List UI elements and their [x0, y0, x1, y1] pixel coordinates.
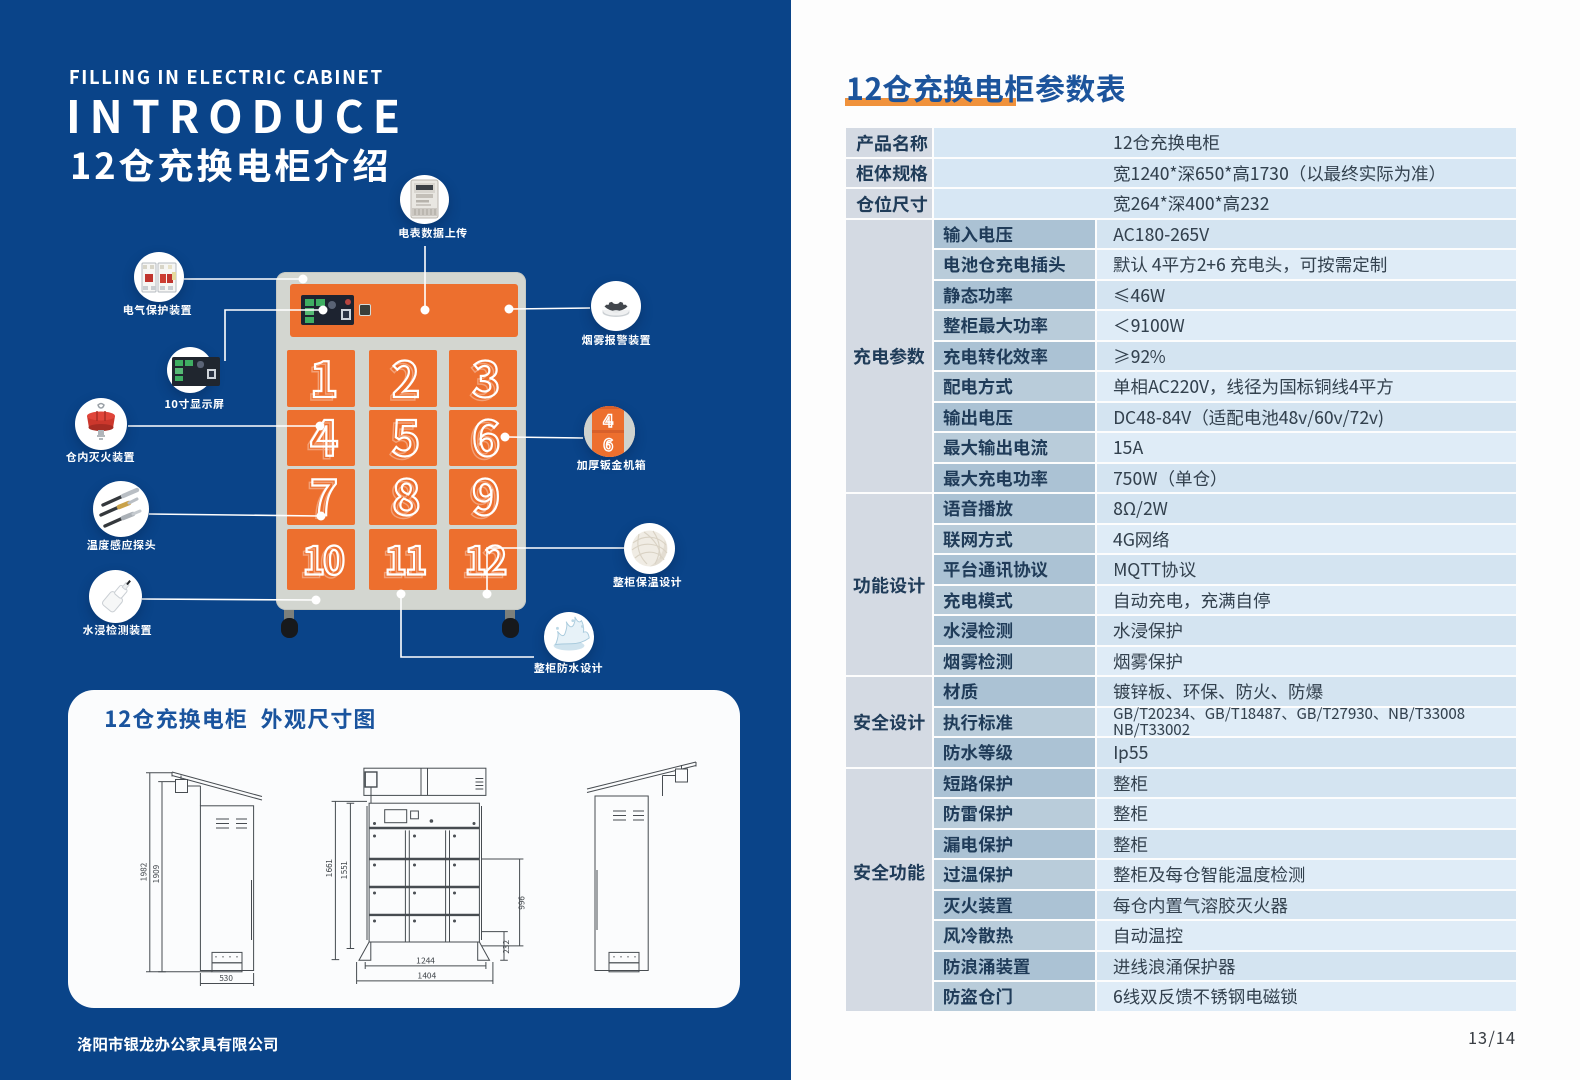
svg-text:1404: 1404 — [418, 970, 437, 982]
svg-text:232: 232 — [500, 940, 512, 954]
svg-text:1551: 1551 — [338, 860, 350, 879]
svg-text:1661: 1661 — [323, 858, 335, 877]
svg-text:1909: 1909 — [150, 865, 162, 883]
svg-text:996: 996 — [516, 896, 528, 910]
svg-text:4: 4 — [603, 407, 613, 432]
svg-text:6: 6 — [603, 431, 613, 456]
svg-text:1982: 1982 — [138, 862, 150, 881]
svg-text:530: 530 — [219, 972, 233, 984]
svg-text:1244: 1244 — [416, 955, 435, 967]
